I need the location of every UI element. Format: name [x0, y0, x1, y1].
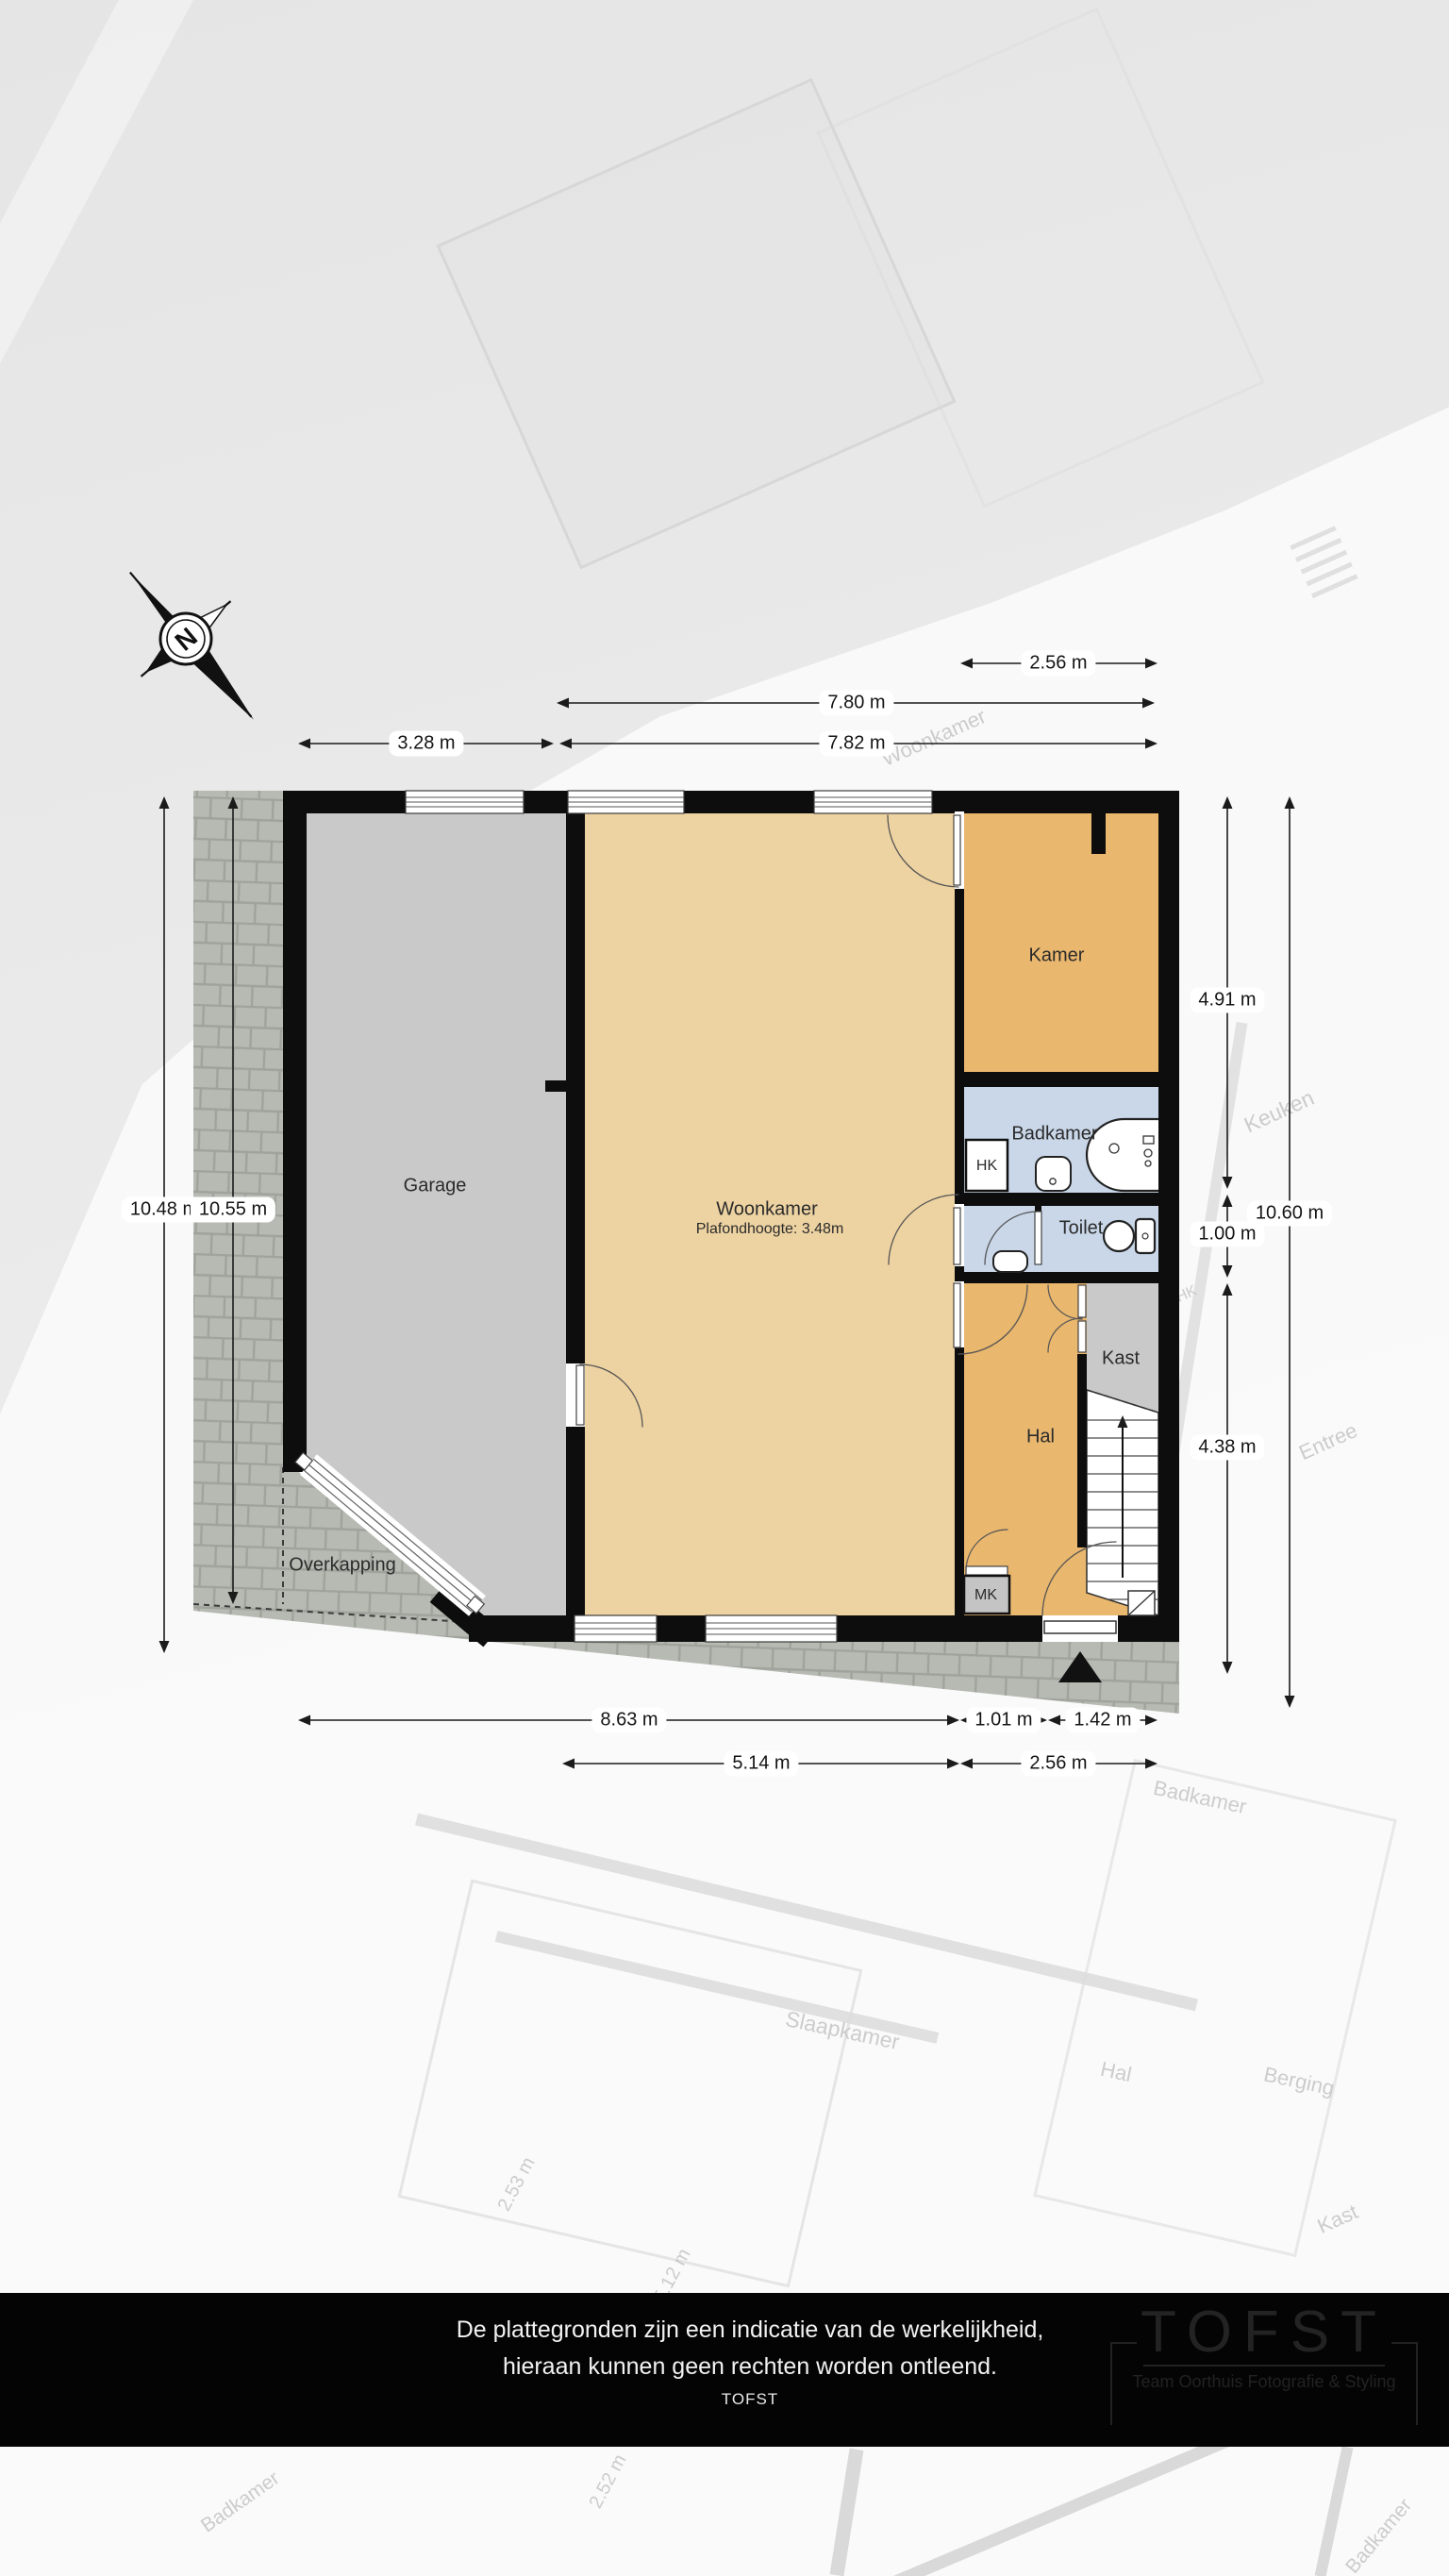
room-label-kamer: Kamer	[1029, 945, 1085, 967]
sink-icon	[993, 1251, 1027, 1272]
dimension-label: 4.38 m	[1190, 1435, 1264, 1461]
room-label-kast: Kast	[1102, 1348, 1140, 1370]
room-kamer	[964, 813, 1158, 1072]
logo-subtitle: Team Oorthuis Fotografie & Styling	[1118, 2372, 1410, 2392]
dimension-label: 3.28 m	[389, 731, 463, 757]
stairs	[1087, 1390, 1158, 1615]
room-label-badkamer: Badkamer	[1011, 1124, 1097, 1146]
logo-title: TOFST	[1118, 2302, 1410, 2363]
dimension-label: 10.55 m	[191, 1197, 275, 1223]
dimension-label: 10.60 m	[1247, 1201, 1332, 1227]
compass-north-icon: N	[85, 535, 298, 758]
room-label-hk: HK	[976, 1158, 997, 1175]
toilet-icon	[1104, 1219, 1155, 1253]
dimension-label: 8.63 m	[591, 1708, 666, 1733]
dimension-label: 2.56 m	[1021, 651, 1095, 677]
logo-divider	[1143, 2365, 1385, 2367]
dimension-label: 5.14 m	[724, 1751, 798, 1777]
dimension-label: 7.82 m	[819, 731, 893, 757]
floorplan-page: Woonkamer Keuken HK Entree Badkamer Slaa…	[0, 0, 1449, 2576]
room-label-garage: Garage	[404, 1176, 467, 1197]
dimension-label: 1.42 m	[1065, 1708, 1140, 1733]
dimension-label: 1.01 m	[966, 1708, 1041, 1733]
room-label-overkapping: Overkapping	[289, 1555, 395, 1577]
dimension-label: 7.80 m	[819, 691, 893, 716]
dimension-label: 4.91 m	[1190, 988, 1264, 1013]
room-label-mk: MK	[974, 1587, 997, 1604]
floor-plan-svg: N	[0, 0, 1449, 2576]
dimension-label: 2.56 m	[1021, 1751, 1095, 1777]
glass-panel	[1128, 1591, 1155, 1615]
room-label-woonkamer: Woonkamer	[716, 1199, 817, 1221]
logo-bracket-right	[1391, 2342, 1418, 2425]
room-label-ceiling-height: Plafondhoogte: 3.48m	[696, 1221, 844, 1238]
sink-icon	[1036, 1157, 1071, 1191]
logo-bracket-left	[1110, 2342, 1137, 2425]
tofst-logo: TOFST Team Oorthuis Fotografie & Styling	[1118, 2302, 1410, 2439]
room-label-toilet: Toilet	[1059, 1218, 1104, 1240]
room-label-hal: Hal	[1026, 1427, 1055, 1448]
